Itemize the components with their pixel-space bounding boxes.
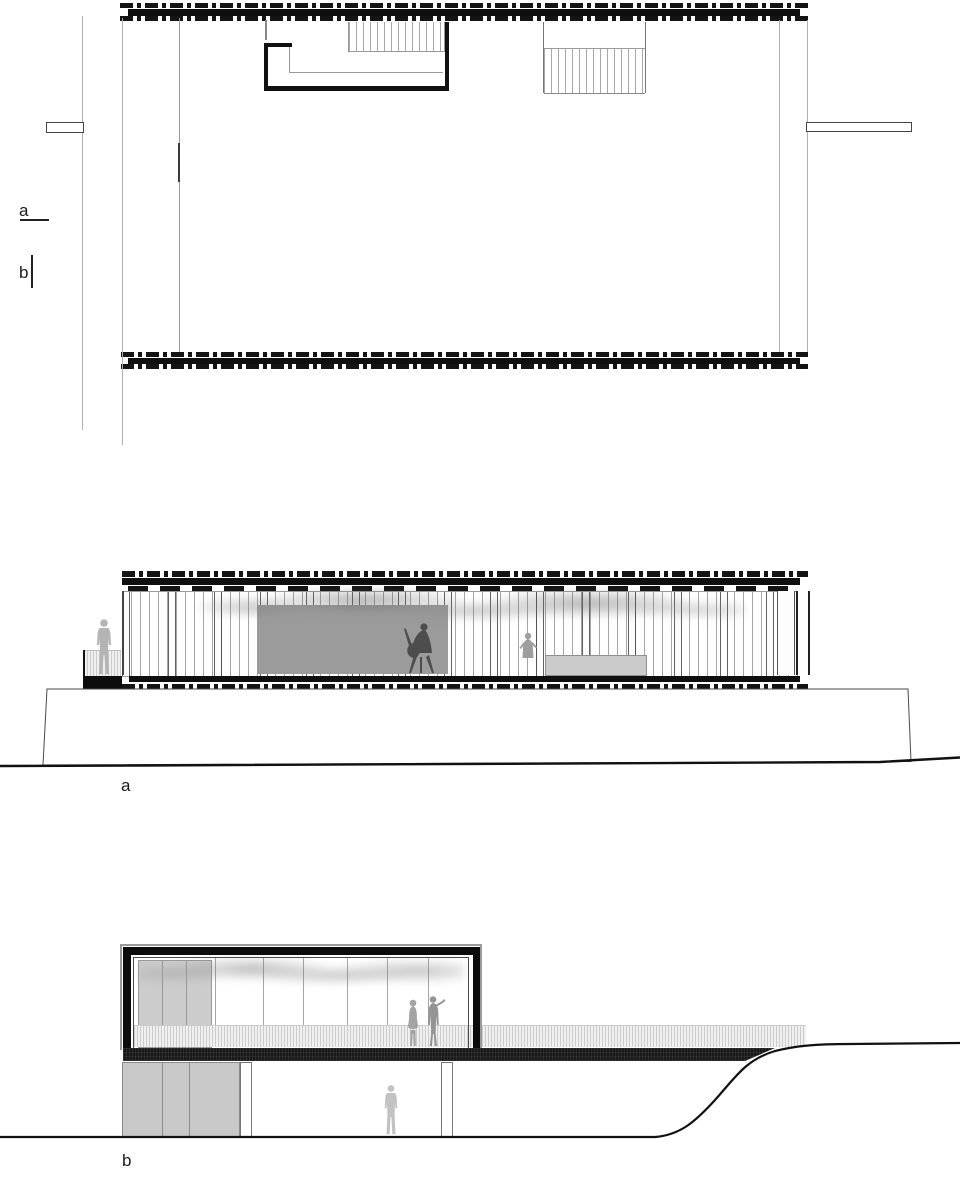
- section-a-right-edge: [796, 591, 810, 675]
- plan-top-band-dash-lower: [120, 16, 808, 21]
- drawing-canvas: a b: [0, 0, 960, 1177]
- section-a-right-end-strip: [777, 591, 795, 675]
- plan-top-band-solid: [128, 9, 800, 16]
- desk-person-figure: [517, 632, 539, 658]
- section-b-floor-slab: [123, 1048, 775, 1061]
- plan-core-wall-left: [264, 43, 268, 91]
- plan-left-canopy: [46, 122, 84, 133]
- section-marker-b: b: [19, 264, 28, 281]
- plan-core-wall-stub: [265, 20, 267, 40]
- basement-person-figure: [380, 1084, 402, 1136]
- section-a-roof-dash: [122, 571, 808, 577]
- plan-interior-wall-line: [179, 18, 180, 352]
- section-a-floor-solid: [129, 676, 800, 682]
- plan-core-inner-line-vertical: [289, 47, 290, 73]
- entry-railing-post: [83, 650, 85, 676]
- section-marker-a-line: [20, 219, 49, 221]
- panel-divider: [189, 1063, 190, 1137]
- plan-left-outer-wall-line: [82, 16, 83, 430]
- section-a-cloud-artwork: [185, 589, 745, 641]
- basement-column-east: [441, 1062, 453, 1137]
- entry-person-figure: [93, 618, 115, 676]
- section-a-floor-dash: [122, 684, 808, 690]
- plan-right-outer-wall-line: [807, 20, 808, 352]
- cello-player-figure: [402, 622, 440, 675]
- plan-stair-west: [348, 22, 445, 52]
- section-marker-b-line: [31, 255, 33, 288]
- plan-stair-east-right-wall: [645, 22, 646, 93]
- plan-right-inner-wall-line: [779, 20, 780, 352]
- section-a-roof-solid: [122, 578, 800, 585]
- plan-top-band-dash-upper: [120, 3, 808, 8]
- plan-core-inner-line-horizontal: [289, 72, 443, 73]
- panel-divider: [162, 1063, 163, 1137]
- section-a-label: a: [121, 777, 130, 794]
- basement-panels: [122, 1062, 240, 1138]
- plan-bottom-band-dash-lower: [121, 364, 808, 369]
- section-b-frame-outer-edge: [120, 944, 482, 1050]
- plan-right-canopy: [806, 122, 912, 132]
- plan-core-wall-bottom: [264, 86, 449, 91]
- plan-core-wall-right: [445, 22, 449, 91]
- plan-interior-wall-dark-segment: [178, 143, 180, 182]
- entry-platform-base: [83, 676, 122, 691]
- plan-core-wall-top-cap: [264, 43, 292, 47]
- section-a-left-edge: [122, 591, 124, 675]
- plan-bottom-band-dash-upper: [121, 352, 808, 357]
- section-b-label: b: [122, 1152, 131, 1169]
- basement-column-west: [240, 1062, 252, 1137]
- plan-left-inner-wall-line: [122, 18, 123, 445]
- section-marker-a: a: [19, 202, 28, 219]
- reception-desk: [545, 655, 647, 676]
- section-a-plinth: [43, 689, 911, 765]
- plan-stair-east-treads: [544, 48, 645, 94]
- section-a-ground-line: [0, 758, 960, 767]
